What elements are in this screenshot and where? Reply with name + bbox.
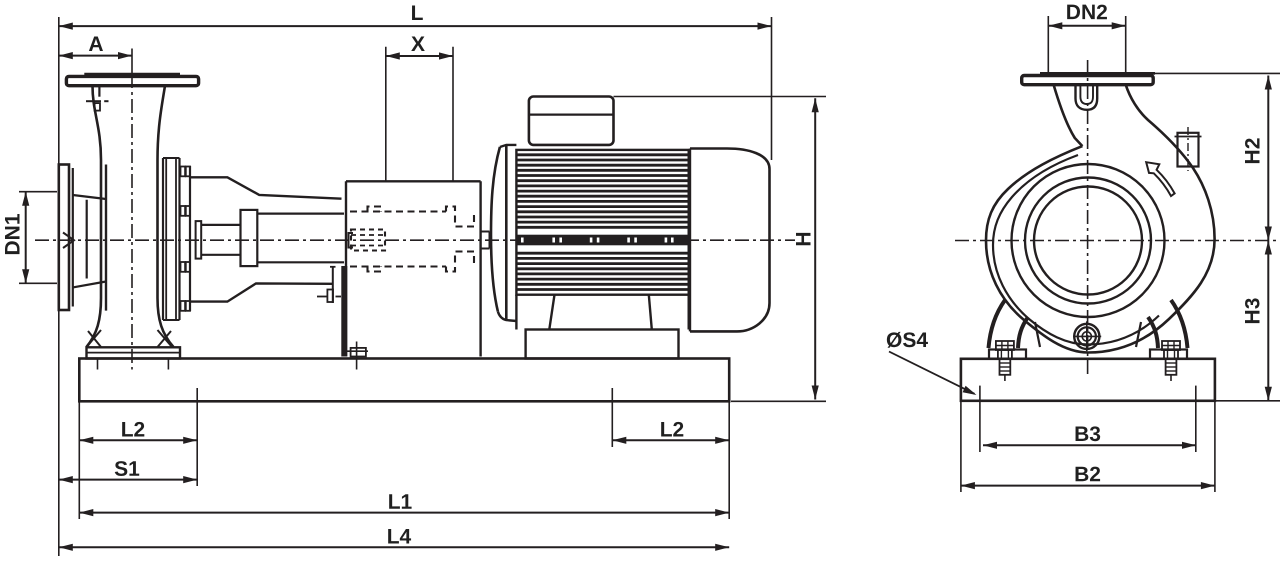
svg-text:L4: L4 [387, 525, 412, 548]
svg-text:S1: S1 [114, 458, 140, 481]
svg-text:B2: B2 [1074, 463, 1101, 486]
svg-text:H3: H3 [1242, 298, 1265, 325]
svg-text:DN1: DN1 [1, 213, 24, 255]
svg-text:L1: L1 [388, 491, 413, 514]
svg-text:L2: L2 [121, 418, 146, 441]
svg-text:ØS4: ØS4 [886, 329, 928, 352]
svg-text:H2: H2 [1242, 138, 1265, 165]
svg-text:H: H [793, 231, 816, 246]
svg-text:DN2: DN2 [1066, 1, 1108, 24]
svg-text:X: X [411, 33, 425, 56]
svg-text:L: L [411, 2, 424, 25]
svg-text:B3: B3 [1074, 423, 1101, 446]
svg-text:A: A [88, 33, 103, 56]
svg-text:L2: L2 [660, 418, 685, 441]
